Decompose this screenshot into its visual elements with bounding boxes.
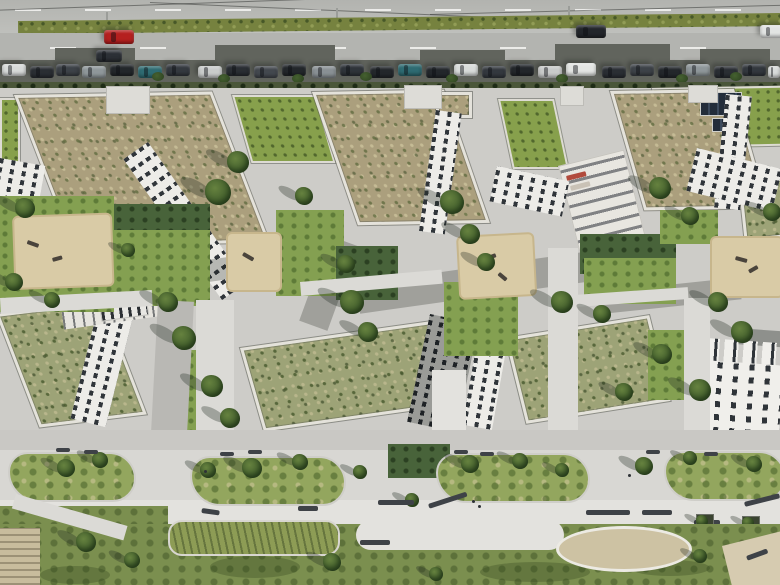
- park-tree: [76, 532, 96, 552]
- lawn-patch: [210, 556, 300, 578]
- aerial-photo: [0, 0, 780, 585]
- park-tree: [124, 552, 140, 568]
- park-tree: [693, 549, 707, 563]
- park-tree: [429, 567, 443, 581]
- paving-bay: [356, 520, 564, 550]
- planting-bed: [168, 520, 340, 556]
- park-tree: [323, 553, 341, 571]
- lawn-patch: [480, 562, 590, 582]
- wooden-deck: [0, 528, 40, 585]
- park-layer: [0, 0, 780, 585]
- lawn-patch: [40, 566, 110, 584]
- park-bench: [360, 540, 390, 545]
- gravel-oval: [556, 526, 692, 572]
